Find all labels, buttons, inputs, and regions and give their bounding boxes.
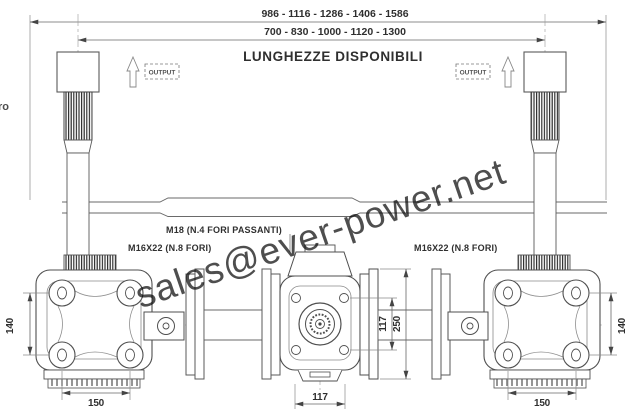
output-right-text: OUTPUT (460, 70, 487, 77)
left-shaft (67, 153, 89, 257)
left-gearbox-input-cap (64, 255, 116, 270)
right-shaft-neck (531, 140, 559, 153)
dim-117-bottom: 117 (312, 392, 328, 403)
technical-drawing-gearbox-assembly: ro 986 - 1116 - 1286 - 1406 - 1586 700 -… (0, 0, 642, 418)
flange-plate (369, 269, 378, 379)
right-yoke (524, 52, 566, 92)
flange-plate (360, 274, 369, 375)
coupling-tube (204, 310, 262, 340)
label-m16-right: M16X22 (N.8 FORI) (414, 243, 497, 253)
right-gearbox-base (490, 370, 590, 379)
right-shaft (534, 153, 556, 257)
left-stub-pin-hole (163, 323, 169, 329)
left-gearbox-base (44, 370, 144, 379)
dim-250-vertical: 250 (392, 315, 403, 332)
center-bottom-detail (310, 372, 330, 377)
dim-117-vertical: 117 (378, 316, 389, 332)
flange-plate (271, 274, 280, 375)
center-hub (299, 303, 341, 345)
flange-plate (432, 269, 441, 379)
output-left-text: OUTPUT (149, 70, 176, 77)
left-shaft-neck (64, 140, 92, 153)
output-label-right: OUTPUT (456, 64, 490, 79)
inner-length-values: 700 - 830 - 1000 - 1120 - 1300 (264, 26, 406, 38)
drawing-heading: LUNGHEZZE DISPONIBILI (243, 49, 423, 64)
dim-150-left: 150 (88, 398, 105, 409)
dim-140-left: 140 (5, 317, 16, 334)
outer-length-values: 986 - 1116 - 1286 - 1406 - 1586 (261, 8, 408, 20)
right-splined-shaft (531, 92, 559, 140)
output-label-left: OUTPUT (145, 64, 179, 79)
right-stub-pin-hole (467, 323, 473, 329)
left-yoke (57, 52, 99, 92)
drawing-canvas: ro 986 - 1116 - 1286 - 1406 - 1586 700 -… (0, 0, 642, 418)
flange-plate (262, 269, 271, 379)
dim-150-right: 150 (534, 398, 551, 409)
left-splined-shaft (64, 92, 92, 140)
right-gearbox-input-cap (518, 255, 570, 270)
dim-140-right: 140 (617, 317, 628, 334)
label-m16-left: M16X22 (N.8 FORI) (128, 243, 211, 253)
edge-text-fragment: ro (0, 101, 9, 113)
